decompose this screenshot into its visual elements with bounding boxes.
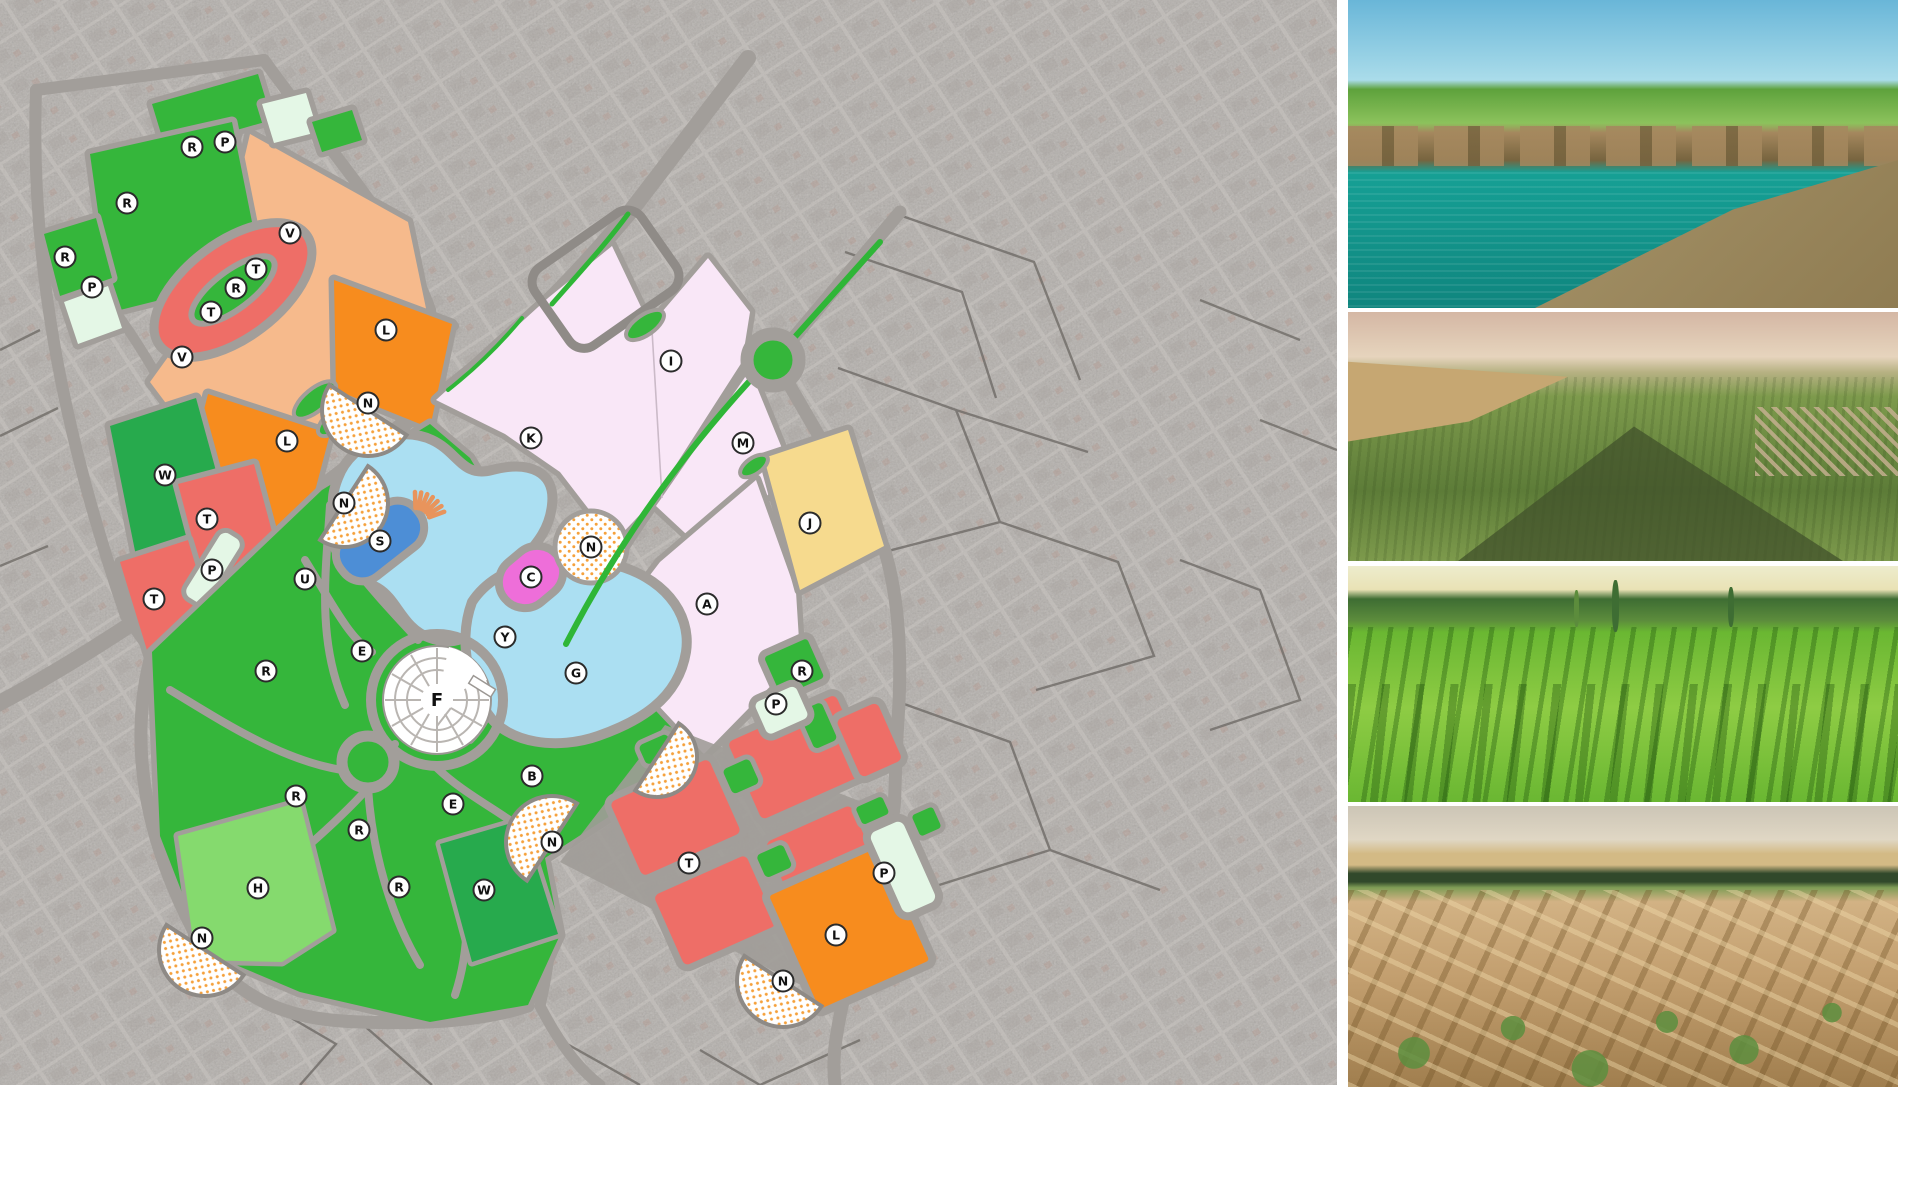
svg-text:P: P [771, 697, 780, 712]
svg-text:R: R [261, 664, 271, 679]
marker-R: R [55, 247, 76, 268]
svg-text:T: T [252, 262, 261, 277]
marker-R: R [286, 786, 307, 807]
marker-N: N [773, 971, 794, 992]
master-plan-map: RPRRPVTRTVLNLWTPTUNKIMSCNYAGFERREBRHRWNN… [0, 0, 1337, 1085]
marker-G: G [566, 663, 587, 684]
photo-mudbrick-ruins [1348, 806, 1898, 1087]
marker-V: V [172, 347, 193, 368]
marker-I: I [661, 351, 682, 372]
marker-P: P [766, 694, 787, 715]
svg-text:R: R [797, 664, 807, 679]
svg-text:I: I [669, 354, 674, 369]
poplar-tree [1612, 580, 1619, 632]
plan-svg: RPRRPVTRTVLNLWTPTUNKIMSCNYAGFERREBRHRWNN… [0, 0, 1337, 1085]
svg-text:N: N [363, 396, 373, 411]
marker-R: R [182, 137, 203, 158]
marker-E: E [443, 794, 464, 815]
svg-text:P: P [879, 866, 888, 881]
poplar-tree [1574, 590, 1579, 628]
svg-text:W: W [477, 883, 491, 898]
svg-text:S: S [375, 534, 384, 549]
svg-text:T: T [207, 305, 216, 320]
svg-text:T: T [203, 512, 212, 527]
svg-text:K: K [526, 431, 537, 446]
shrubs [1348, 932, 1898, 1087]
marker-T: T [679, 853, 700, 874]
marker-R: R [256, 661, 277, 682]
svg-text:M: M [737, 436, 749, 451]
marker-R: R [792, 661, 813, 682]
marker-P: P [215, 132, 236, 153]
photo-lake-ruins [1348, 0, 1898, 308]
svg-text:B: B [527, 769, 537, 784]
svg-text:A: A [702, 597, 712, 612]
marker-L: L [376, 320, 397, 341]
marker-N: N [358, 393, 379, 414]
svg-text:U: U [300, 572, 310, 587]
marker-T: T [144, 589, 165, 610]
svg-text:V: V [177, 350, 187, 365]
svg-text:J: J [807, 516, 813, 531]
marker-Y: Y [495, 627, 516, 648]
svg-text:N: N [339, 496, 349, 511]
svg-text:N: N [778, 974, 788, 989]
svg-text:R: R [354, 823, 364, 838]
marker-R: R [117, 193, 138, 214]
svg-text:R: R [122, 196, 132, 211]
ruins-band [1348, 126, 1898, 166]
marker-P: P [202, 560, 223, 581]
svg-text:R: R [60, 250, 70, 265]
marker-E: E [352, 641, 373, 662]
svg-text:L: L [382, 323, 390, 338]
marker-L: L [826, 925, 847, 946]
svg-text:P: P [87, 280, 96, 295]
roundabout [747, 334, 799, 386]
marker-T: T [201, 302, 222, 323]
svg-text:C: C [526, 570, 535, 585]
marker-S: S [370, 531, 391, 552]
svg-text:P: P [220, 135, 229, 150]
marker-T: T [246, 259, 267, 280]
svg-text:N: N [586, 540, 596, 555]
vine-rows-near [1348, 684, 1898, 802]
photo-aerial-orchards [1348, 312, 1898, 561]
marker-H: H [248, 878, 269, 899]
svg-text:Y: Y [499, 630, 510, 645]
park-traffic-circle [342, 736, 394, 788]
marker-J: J [800, 513, 821, 534]
marker-M: M [733, 433, 754, 454]
marker-W: W [155, 465, 176, 486]
svg-text:H: H [253, 881, 263, 896]
photo-vineyard [1348, 566, 1898, 802]
marker-V: V [280, 223, 301, 244]
screenshot-canvas: RPRRPVTRTVLNLWTPTUNKIMSCNYAGFERREBRHRWNN… [0, 0, 1920, 1200]
village-cluster [1755, 407, 1898, 477]
marker-N: N [542, 832, 563, 853]
marker-L: L [277, 431, 298, 452]
svg-text:E: E [358, 644, 367, 659]
marker-W: W [474, 880, 495, 901]
marker-P: P [874, 863, 895, 884]
marker-N: N [192, 928, 213, 949]
poplar-tree [1728, 587, 1734, 627]
marker-U: U [295, 569, 316, 590]
svg-text:P: P [207, 563, 216, 578]
svg-text:V: V [285, 226, 295, 241]
marker-N: N [334, 493, 355, 514]
marker-P: P [82, 277, 103, 298]
marker-F: F [431, 690, 443, 711]
marker-K: K [521, 428, 542, 449]
svg-text:F: F [431, 690, 443, 711]
marker-R: R [226, 278, 247, 299]
svg-text:L: L [283, 434, 291, 449]
svg-text:T: T [150, 592, 159, 607]
svg-text:R: R [187, 140, 197, 155]
marker-R: R [349, 820, 370, 841]
svg-text:E: E [449, 797, 458, 812]
svg-text:R: R [291, 789, 301, 804]
marker-C: C [521, 567, 542, 588]
svg-text:N: N [197, 931, 207, 946]
marker-B: B [522, 766, 543, 787]
svg-text:N: N [547, 835, 557, 850]
marker-N: N [581, 537, 602, 558]
marker-T: T [197, 509, 218, 530]
marker-R: R [389, 877, 410, 898]
svg-text:T: T [685, 856, 694, 871]
svg-text:W: W [158, 468, 172, 483]
marker-A: A [697, 594, 718, 615]
svg-text:L: L [832, 928, 840, 943]
svg-text:G: G [571, 666, 581, 681]
svg-text:R: R [394, 880, 404, 895]
svg-text:R: R [231, 281, 241, 296]
